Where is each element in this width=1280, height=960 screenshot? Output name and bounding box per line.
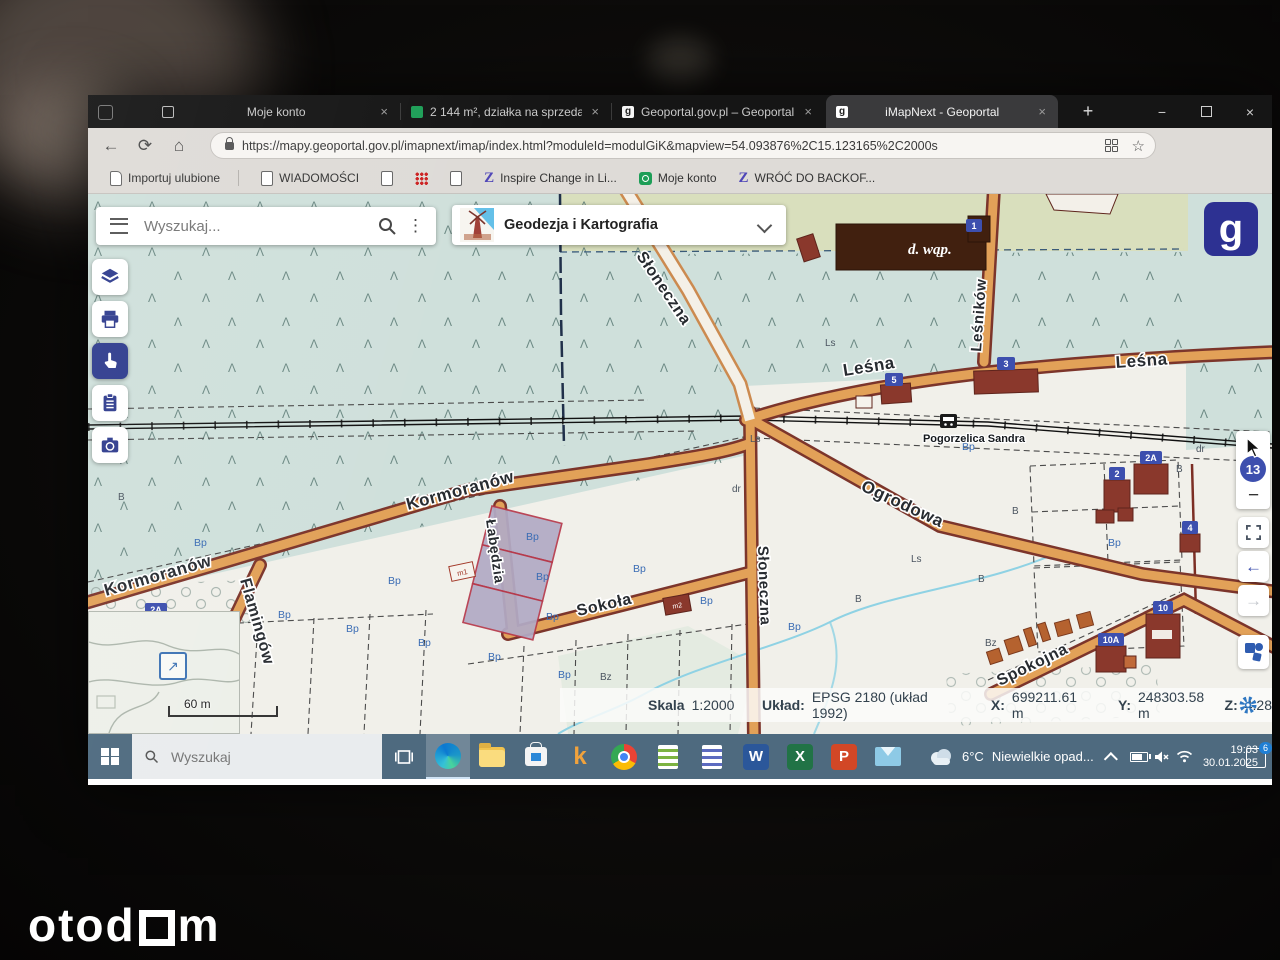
geoportal-logo[interactable]: g [1204, 202, 1258, 256]
street-label-sloneczna-south: Słoneczna [754, 546, 774, 626]
svg-text:Bp: Bp [418, 637, 431, 649]
laptop-screen: Moje konto × 2 144 m², działka na sprzed… [88, 95, 1272, 785]
address-bar[interactable]: https://mapy.geoportal.gov.pl/imapnext/i… [210, 132, 1156, 159]
scale-label: Skala [648, 697, 685, 713]
svg-text:Bp: Bp [388, 575, 401, 587]
start-button[interactable] [88, 734, 132, 779]
search-icon[interactable] [377, 216, 397, 236]
svg-text:Bp: Bp [536, 571, 549, 583]
svg-text:Bz: Bz [600, 672, 612, 683]
printer-icon [99, 308, 121, 330]
bookmark-page-1[interactable] [381, 171, 393, 186]
svg-text:5: 5 [891, 375, 896, 385]
dwap-label: d. wąp. [908, 242, 952, 258]
tab-close-icon[interactable]: × [589, 104, 601, 119]
taskbar-search[interactable] [132, 734, 382, 779]
watermark-text-right: m [178, 898, 221, 952]
svg-text:B: B [118, 492, 125, 503]
store-button[interactable] [514, 734, 558, 779]
search-input[interactable] [142, 217, 377, 236]
lock-icon [225, 142, 234, 150]
svg-text:Bp: Bp [700, 595, 713, 607]
apps-grid-icon[interactable] [1105, 139, 1118, 152]
zoom-level-badge: 13 [1240, 456, 1266, 482]
search-options-icon[interactable]: ⋮ [407, 216, 424, 236]
ceiling-reflection [648, 38, 712, 82]
file-explorer-button[interactable] [470, 734, 514, 779]
battery-icon [1130, 752, 1148, 762]
svg-text:Bp: Bp [346, 623, 359, 635]
action-center[interactable]: 6 [1246, 742, 1268, 768]
watermark: otod m [28, 898, 221, 952]
svg-text:Bp: Bp [558, 669, 571, 681]
menu-icon[interactable] [110, 218, 128, 234]
tab-favicon [162, 106, 174, 118]
bookmark-star-icon[interactable]: ☆ [1132, 137, 1145, 155]
svg-text:2A: 2A [1145, 453, 1157, 463]
close-window-button[interactable]: × [1228, 95, 1272, 128]
tab-moje-konto[interactable]: Moje konto × [152, 95, 400, 128]
module-panel[interactable]: Geodezja i Kartografia [452, 205, 786, 245]
bookmarks-bar: Importuj ulubione WIADOMOŚCI Z Inspire C… [88, 163, 1272, 194]
browser-tab-strip: Moje konto × 2 144 m², działka na sprzed… [88, 95, 1272, 128]
chevron-up-icon [1104, 752, 1118, 766]
task-view-icon [395, 749, 413, 765]
chrome-button[interactable] [602, 734, 646, 779]
mouse-cursor [1244, 437, 1264, 459]
otodom-icon [639, 172, 652, 185]
red-grid-icon [415, 172, 428, 185]
search-icon [144, 749, 159, 764]
page-icon [381, 171, 393, 186]
svg-text:Ls: Ls [825, 338, 836, 349]
map-status-bar: Skala 1:2000 Układ: EPSG 2180 (układ 199… [560, 688, 1272, 722]
bookmark-backoffice[interactable]: Z WRÓĆ DO BACKOF... [739, 170, 876, 187]
svg-text:Ls: Ls [750, 434, 761, 445]
tab-close-icon[interactable]: × [1036, 104, 1048, 119]
watermark-square-glyph [139, 910, 175, 946]
svg-text:Bz: Bz [985, 638, 997, 649]
tab-favicon-geoportal: g [836, 106, 848, 118]
kleinanzeigen-button[interactable]: k [558, 734, 602, 779]
battery-indicator[interactable] [1130, 752, 1148, 762]
map-search-bar[interactable]: ⋮ [96, 207, 436, 245]
next-view-button[interactable]: → [1238, 585, 1269, 616]
crs-label: Układ: [762, 697, 805, 713]
word-button[interactable]: W [734, 734, 778, 779]
windows-taskbar: k W X P [88, 734, 1272, 779]
legend-button[interactable] [92, 385, 128, 421]
svg-text:10: 10 [1158, 603, 1168, 613]
module-logo-windmill [460, 208, 494, 242]
notes-dark-button[interactable] [690, 734, 734, 779]
svg-text:dr: dr [1196, 444, 1206, 455]
bookmark-inspire[interactable]: Z Inspire Change in Li... [484, 170, 617, 187]
clipboard-icon [99, 392, 121, 414]
g-letter: g [1219, 207, 1243, 252]
map-viewport[interactable]: Λ Λ [88, 194, 1272, 734]
previous-view-button[interactable]: ← [1238, 551, 1269, 582]
edge-icon [435, 743, 461, 769]
tab-imapnext-active[interactable]: g iMapNext - Geoportal × [826, 95, 1058, 128]
bookmark-dots[interactable] [415, 172, 428, 185]
tab-title: 2 144 m², działka na sprzedaż - [430, 105, 582, 119]
back-icon[interactable]: ← [94, 136, 128, 156]
new-tab-button[interactable]: + [1066, 95, 1110, 128]
x-label: X: [991, 697, 1005, 713]
svg-text:Bp: Bp [526, 531, 539, 543]
z-icon: Z [739, 170, 749, 187]
notes-green-button[interactable] [646, 734, 690, 779]
volume-muted[interactable] [1154, 750, 1170, 764]
scale-bar-label: 60 m [184, 697, 211, 711]
speaker-mute-icon [1154, 750, 1170, 764]
tab-geoportal[interactable]: g Geoportal.gov.pl – Geoportal In × [612, 95, 824, 128]
layers-button[interactable] [92, 259, 128, 295]
page-icon [450, 171, 462, 186]
svg-text:Ls: Ls [911, 554, 922, 565]
layers-icon [99, 266, 121, 288]
y-label: Y: [1118, 697, 1131, 713]
url-text[interactable]: https://mapy.geoportal.gov.pl/imapnext/i… [242, 139, 1091, 153]
minimize-button[interactable]: − [1140, 95, 1184, 128]
scale-value: 1:2000 [692, 697, 735, 713]
svg-text:Bp: Bp [633, 563, 646, 575]
bookmark-label: WRÓĆ DO BACKOF... [755, 171, 876, 185]
store-icon [525, 747, 547, 766]
y-value: 248303.58 m [1138, 689, 1218, 721]
svg-text:1: 1 [971, 221, 976, 231]
weather-widget[interactable]: 6°C Niewielkie opad... [928, 748, 1094, 766]
svg-text:4: 4 [1187, 523, 1192, 533]
task-view-button[interactable] [382, 734, 426, 779]
page-icon [261, 171, 273, 186]
tab-close-icon[interactable]: × [802, 104, 814, 119]
svg-text:Bp: Bp [278, 609, 291, 621]
bookmark-import[interactable]: Importuj ulubione [110, 171, 220, 186]
notification-badge: 6 [1259, 742, 1272, 754]
tab-title: Moje konto [181, 105, 371, 119]
folder-icon [479, 747, 505, 767]
k-icon: k [573, 743, 586, 771]
scale-bar: 60 m [168, 706, 278, 717]
document-dark-icon [702, 745, 722, 769]
edge-button-active[interactable] [426, 734, 470, 779]
expand-overview-icon[interactable]: ↗ [159, 652, 187, 680]
svg-text:Bp: Bp [488, 651, 501, 663]
bookmark-page-2[interactable] [450, 171, 462, 186]
svg-text:10A: 10A [1103, 635, 1120, 645]
tab-close-icon[interactable]: × [378, 104, 390, 119]
crs-value: EPSG 2180 (układ 1992) [812, 689, 963, 721]
taskbar-search-input[interactable] [169, 748, 323, 766]
tray-chevron[interactable] [1108, 752, 1118, 762]
svg-text:B: B [1012, 506, 1019, 517]
pointer-tool-button-active[interactable] [92, 343, 128, 379]
svg-text:B: B [978, 574, 985, 585]
fullscreen-button[interactable] [1238, 517, 1269, 548]
hand-pointer-icon [99, 350, 121, 372]
street-label-lesna-2: Leśna [1115, 349, 1168, 372]
excel-button[interactable]: X [778, 734, 822, 779]
bookmark-label: WIADOMOŚCI [279, 171, 359, 185]
cloud-icon [928, 748, 954, 766]
chevron-down-icon[interactable] [757, 217, 773, 233]
print-button[interactable] [92, 301, 128, 337]
tab-title: iMapNext - Geoportal [855, 105, 1029, 119]
bookmark-moje-konto[interactable]: Moje konto [639, 171, 717, 185]
home-icon[interactable]: ⌂ [162, 136, 196, 156]
tab-title: Geoportal.gov.pl – Geoportal In [641, 105, 795, 119]
bookmark-wiadomosci[interactable]: WIADOMOŚCI [261, 171, 359, 186]
station-label: Pogorzelica Sandra [923, 433, 1026, 445]
powerpoint-button[interactable]: P [822, 734, 866, 779]
svg-text:B: B [1176, 464, 1183, 475]
import-icon [110, 171, 122, 186]
tab-favicon-otodom [411, 106, 423, 118]
screenshot-button[interactable] [92, 427, 128, 463]
document-green-icon [658, 745, 678, 769]
camera-icon [99, 434, 121, 456]
svg-text:B: B [855, 594, 862, 605]
svg-text:Bp: Bp [1108, 537, 1121, 549]
shapes-icon [1244, 641, 1264, 663]
bookmark-label: Moje konto [658, 171, 717, 185]
excel-icon: X [787, 744, 813, 770]
mail-icon [875, 747, 901, 766]
zoom-out-button[interactable]: − [1238, 480, 1269, 511]
z-icon: Z [484, 170, 494, 187]
svg-text:Bp: Bp [788, 621, 801, 633]
weather-text: Niewielkie opad... [992, 749, 1094, 764]
chrome-icon [611, 744, 637, 770]
bookmarks-separator [238, 170, 239, 186]
svg-text:dr: dr [732, 484, 742, 495]
tab-search-icon[interactable] [98, 105, 113, 120]
tab-dzialka[interactable]: 2 144 m², działka na sprzedaż - × [401, 95, 611, 128]
z-label: Z: [1225, 697, 1238, 713]
svg-text:Bp: Bp [194, 537, 207, 549]
watermark-text-left: otod [28, 898, 136, 952]
svg-text:Bp: Bp [546, 611, 559, 623]
bookmark-label: Inspire Change in Li... [500, 171, 617, 185]
restore-button[interactable] [1184, 95, 1228, 128]
map-canvas[interactable]: Λ Λ [88, 194, 1272, 734]
module-title: Geodezja i Kartografia [504, 217, 749, 233]
bookmark-label: Importuj ulubione [128, 171, 220, 185]
weather-temp: 6°C [962, 749, 984, 764]
fullscreen-icon [1246, 525, 1261, 540]
settings-gear-icon[interactable] [1238, 695, 1258, 715]
photo-background: Moje konto × 2 144 m², działka na sprzed… [0, 0, 1280, 960]
basemap-button[interactable] [1238, 635, 1269, 669]
tab-favicon-geoportal: g [622, 106, 634, 118]
svg-text:3: 3 [1003, 359, 1008, 369]
mail-button[interactable] [866, 734, 910, 779]
x-value: 699211.61 m [1012, 689, 1091, 721]
svg-text:2: 2 [1114, 469, 1119, 479]
refresh-icon[interactable]: ⟳ [128, 136, 162, 156]
browser-toolbar: ← ⟳ ⌂ https://mapy.geoportal.gov.pl/imap… [88, 128, 1272, 163]
powerpoint-icon: P [831, 744, 857, 770]
word-icon: W [743, 744, 769, 770]
